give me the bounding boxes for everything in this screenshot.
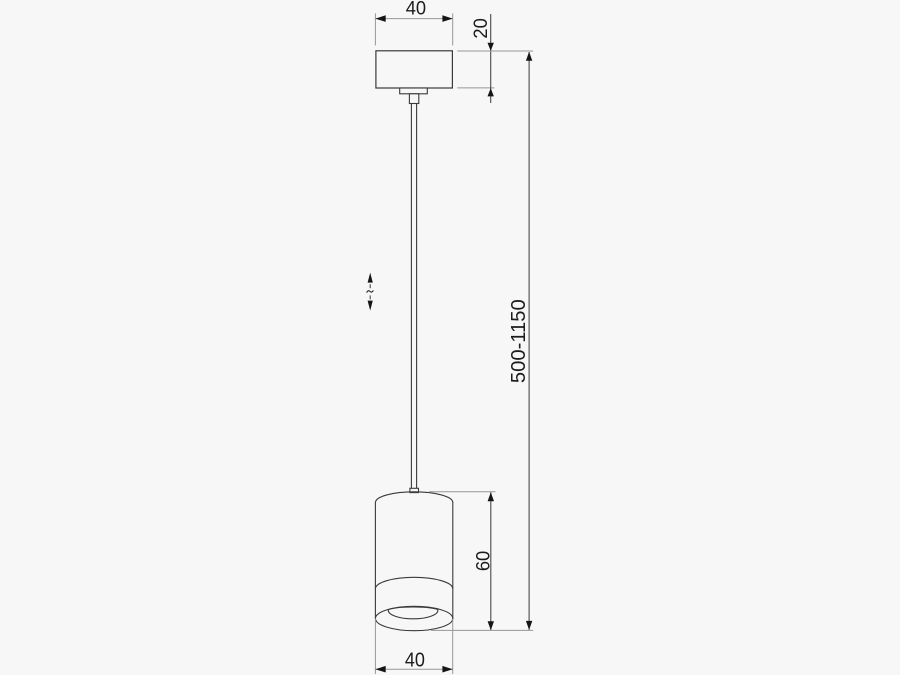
svg-text:20: 20 (471, 18, 493, 38)
svg-text:60: 60 (473, 551, 495, 571)
svg-text:40: 40 (405, 649, 425, 671)
svg-text:500-1150: 500-1150 (508, 299, 530, 383)
svg-text:40: 40 (406, 0, 426, 20)
